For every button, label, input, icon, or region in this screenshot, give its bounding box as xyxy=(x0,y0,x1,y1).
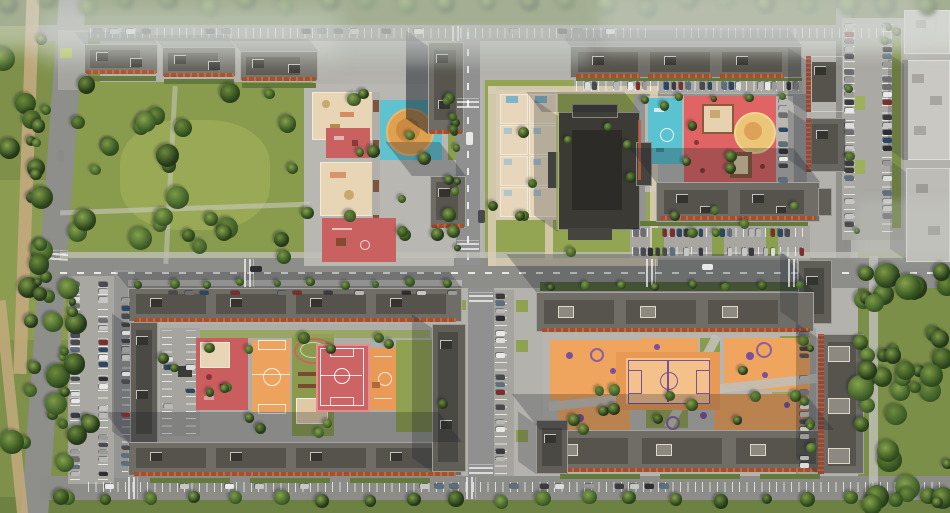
tree xyxy=(405,131,415,141)
e-equip-4 xyxy=(654,344,660,350)
tree xyxy=(909,382,920,393)
shadow-kindergarten-west xyxy=(534,99,558,232)
car xyxy=(883,85,892,90)
car xyxy=(800,390,809,394)
building-e-east-brick xyxy=(818,334,824,474)
car xyxy=(99,443,108,448)
tree xyxy=(845,85,853,93)
tree xyxy=(733,416,742,425)
car xyxy=(615,484,624,489)
car xyxy=(496,449,505,454)
tree xyxy=(451,187,460,196)
tree xyxy=(365,495,376,506)
tree xyxy=(796,281,803,288)
shadow-f-south xyxy=(105,412,462,442)
car xyxy=(883,161,892,166)
car xyxy=(883,54,892,59)
building-d-north-balc2 xyxy=(648,74,712,78)
car xyxy=(883,146,892,151)
car xyxy=(641,229,646,237)
tree xyxy=(344,210,355,221)
car xyxy=(122,314,130,318)
tree xyxy=(158,353,169,364)
building-d-north-balc1 xyxy=(576,74,640,78)
tree xyxy=(264,89,274,99)
car xyxy=(99,435,108,440)
sand1-equipment-1 xyxy=(322,100,330,108)
tree xyxy=(566,247,576,257)
sand2-equipment-2 xyxy=(344,190,354,200)
tree xyxy=(129,227,152,250)
lawn-light-patch xyxy=(120,120,270,230)
car xyxy=(592,82,597,90)
building-d-long-balc xyxy=(660,216,816,220)
car xyxy=(765,82,770,90)
tree xyxy=(623,140,632,149)
car xyxy=(122,298,130,302)
pergola-3 xyxy=(373,180,379,192)
hedge-f-south-2 xyxy=(250,478,330,483)
kg-canopy-1 xyxy=(504,128,512,134)
car xyxy=(664,82,669,90)
f-basket-ring xyxy=(263,368,281,386)
tree xyxy=(547,284,554,291)
building-e-bottom-box2 xyxy=(656,444,672,456)
building-f-south-sec1 xyxy=(136,448,206,468)
car xyxy=(679,82,684,90)
car xyxy=(845,130,854,135)
car xyxy=(278,291,287,296)
tree xyxy=(738,366,747,375)
building-f-east-core xyxy=(438,332,458,462)
car xyxy=(99,472,108,477)
tree xyxy=(688,121,697,130)
tree xyxy=(447,225,460,238)
red1-equipment xyxy=(352,140,358,146)
car xyxy=(686,82,691,90)
car xyxy=(845,214,854,219)
car xyxy=(663,248,668,256)
car xyxy=(800,248,805,256)
tree xyxy=(78,76,95,93)
car xyxy=(122,339,130,343)
car xyxy=(496,331,505,336)
tree xyxy=(790,202,798,210)
tree xyxy=(0,430,24,454)
tree xyxy=(877,440,899,462)
tree xyxy=(326,344,336,354)
car xyxy=(845,199,854,204)
tree xyxy=(453,144,460,151)
car xyxy=(496,420,505,425)
building-d-long-box1 xyxy=(676,194,688,203)
building-f-north-box2 xyxy=(230,298,242,307)
building-d-north-balc3 xyxy=(720,74,784,78)
car xyxy=(402,291,411,296)
car xyxy=(883,130,892,135)
car xyxy=(630,484,639,489)
car xyxy=(800,376,809,380)
tree xyxy=(90,165,101,176)
car xyxy=(225,484,234,489)
car xyxy=(787,82,792,90)
tree xyxy=(687,228,698,239)
building-right-2-unit3 xyxy=(914,126,926,135)
car xyxy=(779,128,788,133)
car xyxy=(677,229,682,237)
tree xyxy=(721,283,730,292)
car xyxy=(496,353,505,358)
car xyxy=(99,326,108,331)
car xyxy=(496,405,505,410)
car xyxy=(71,377,80,382)
splash-ring xyxy=(660,128,674,142)
tree xyxy=(653,414,663,424)
car xyxy=(845,161,854,166)
car xyxy=(122,323,130,327)
car xyxy=(883,92,892,97)
hedge-a1 xyxy=(86,76,156,81)
car xyxy=(749,229,754,237)
tree xyxy=(220,83,240,103)
car xyxy=(417,291,426,296)
tree xyxy=(34,238,47,251)
tree xyxy=(356,148,364,156)
car xyxy=(845,123,854,128)
tree xyxy=(34,278,42,286)
car xyxy=(883,123,892,128)
car xyxy=(800,412,809,416)
car xyxy=(300,484,309,489)
car xyxy=(699,229,704,237)
car xyxy=(99,289,108,294)
building-d-north-box1 xyxy=(592,56,604,65)
car xyxy=(729,82,734,90)
red-d-equip-1 xyxy=(694,140,699,145)
red2-equipment xyxy=(336,238,346,246)
car xyxy=(720,229,725,237)
car xyxy=(845,222,854,227)
red2-ring xyxy=(360,240,370,250)
car xyxy=(883,138,892,143)
kg-pool-1 xyxy=(506,96,518,103)
tree xyxy=(358,89,369,100)
crosswalk-ch-1 xyxy=(244,259,254,287)
tree xyxy=(314,428,324,438)
building-f-north-box3 xyxy=(310,298,322,307)
e-equip-6 xyxy=(762,372,768,378)
tree xyxy=(397,226,408,237)
tree xyxy=(454,178,461,185)
f-soccer-center-ring xyxy=(334,368,350,384)
car xyxy=(99,348,108,353)
car xyxy=(785,229,790,237)
e-basket-center-ring xyxy=(660,372,678,390)
car xyxy=(99,413,108,418)
car xyxy=(800,463,809,467)
tree xyxy=(30,169,41,180)
car xyxy=(800,456,809,460)
car xyxy=(845,92,854,97)
tree xyxy=(43,312,63,332)
building-f-west-box2 xyxy=(136,390,148,399)
tree xyxy=(229,491,242,504)
tree xyxy=(220,384,229,393)
car xyxy=(200,291,209,296)
tree xyxy=(56,454,74,472)
green-sq-1 xyxy=(516,300,528,312)
car xyxy=(663,229,668,237)
sandpit-d xyxy=(702,104,734,134)
car xyxy=(71,340,80,345)
car xyxy=(355,291,364,296)
crosswalk-cvn-1 xyxy=(457,98,479,108)
tree xyxy=(58,278,79,299)
tree xyxy=(53,489,69,505)
car xyxy=(736,82,741,90)
car xyxy=(708,82,713,90)
building-f-south-box4 xyxy=(390,452,402,461)
car xyxy=(496,309,505,314)
hedge-a2 xyxy=(164,79,234,84)
car-driving-5 xyxy=(478,210,485,223)
tree xyxy=(598,406,608,416)
car xyxy=(779,142,788,147)
car xyxy=(779,149,788,154)
tree xyxy=(865,294,883,312)
car xyxy=(555,484,564,489)
sand-playground-2 xyxy=(320,162,376,216)
hedge-a3 xyxy=(242,83,316,88)
tree xyxy=(862,495,882,513)
car xyxy=(643,82,648,90)
car xyxy=(771,229,776,237)
car xyxy=(71,392,80,397)
tree xyxy=(431,228,444,241)
tree xyxy=(895,274,921,300)
tree xyxy=(298,332,309,343)
tree xyxy=(582,490,597,505)
building-f-north-sec4 xyxy=(376,294,446,314)
e-equip-1 xyxy=(566,352,573,359)
tree xyxy=(28,361,40,373)
car xyxy=(122,413,130,417)
tree xyxy=(758,281,767,290)
kindergarten-south-annex xyxy=(568,228,612,240)
tree xyxy=(405,277,415,287)
car xyxy=(231,291,240,296)
car xyxy=(99,340,108,345)
building-d-north-sec2 xyxy=(650,52,710,72)
car xyxy=(99,355,108,360)
tree xyxy=(896,361,915,380)
tree xyxy=(29,254,49,274)
tree xyxy=(885,404,907,426)
building-f-south-box3 xyxy=(310,452,322,461)
tree xyxy=(665,391,675,401)
car-driving-1 xyxy=(466,132,473,145)
car xyxy=(656,248,661,256)
tree xyxy=(206,388,215,397)
tower-d-east-2-brick xyxy=(806,118,811,172)
car xyxy=(255,484,264,489)
car xyxy=(71,472,80,477)
building-f-north-sec3 xyxy=(296,294,366,314)
sand2-equipment-1 xyxy=(330,172,346,178)
car xyxy=(71,413,80,418)
tree xyxy=(64,353,85,374)
tree xyxy=(341,281,350,290)
tree xyxy=(604,123,612,131)
tree xyxy=(660,101,670,111)
e-ring-1 xyxy=(590,348,604,362)
f-oc2-line-1 xyxy=(374,356,392,357)
car xyxy=(764,248,769,256)
car xyxy=(800,434,809,438)
car xyxy=(883,191,892,196)
tree xyxy=(568,414,579,425)
building-e-top-sec3 xyxy=(708,300,778,324)
red1-mark xyxy=(334,136,344,140)
f-oc2-line-2 xyxy=(374,398,392,399)
tree xyxy=(725,151,736,162)
building-e-bottom-balc xyxy=(546,468,828,472)
tree xyxy=(845,152,854,161)
building-f-south-sec2 xyxy=(216,448,286,468)
e-ring-2 xyxy=(756,342,772,358)
car xyxy=(845,70,854,75)
car xyxy=(634,248,639,256)
car xyxy=(672,82,677,90)
car xyxy=(99,282,108,287)
crosswalk-cvs-1 xyxy=(469,292,493,302)
car xyxy=(670,248,675,256)
car xyxy=(628,82,633,90)
tower-mid-south-box xyxy=(544,434,556,443)
tree xyxy=(442,208,456,222)
tree xyxy=(60,387,70,397)
tree xyxy=(71,116,84,129)
tree xyxy=(101,138,116,153)
tree xyxy=(315,494,329,508)
building-f-north-sec1 xyxy=(136,294,206,314)
tree xyxy=(885,347,902,364)
car xyxy=(186,389,195,393)
car xyxy=(510,484,519,489)
car xyxy=(699,248,704,256)
car xyxy=(122,454,130,458)
tree xyxy=(518,127,529,138)
hedge-f-south-3 xyxy=(350,478,430,483)
red2-line xyxy=(332,228,352,230)
car-driving-3 xyxy=(702,264,713,270)
car xyxy=(728,229,733,237)
car xyxy=(71,399,80,404)
shadow-f-east xyxy=(412,314,432,472)
building-d-long-box3 xyxy=(700,206,710,213)
tree xyxy=(844,491,857,504)
sandpit-toy xyxy=(710,110,720,118)
e-equip-5 xyxy=(746,352,754,360)
car-driving-2 xyxy=(250,266,262,272)
car xyxy=(778,229,783,237)
car xyxy=(641,248,646,256)
tree xyxy=(578,424,589,435)
car xyxy=(883,100,892,105)
building-right-2 xyxy=(902,60,950,160)
car xyxy=(169,291,178,296)
car xyxy=(772,82,777,90)
green-sq-2 xyxy=(516,340,528,352)
tree xyxy=(301,207,314,220)
car xyxy=(883,77,892,82)
tree xyxy=(69,298,77,306)
car xyxy=(99,384,108,389)
hedge-e-south-2 xyxy=(660,474,740,479)
tree xyxy=(609,384,620,395)
car xyxy=(99,362,108,367)
round-playground-inner xyxy=(744,122,762,140)
tree xyxy=(154,208,173,227)
car xyxy=(883,115,892,120)
green-right-2 xyxy=(855,160,865,174)
crosswalk-bottom-1 xyxy=(466,477,476,499)
building-f-north-balc xyxy=(134,318,456,322)
tree xyxy=(448,491,463,506)
car xyxy=(728,248,733,256)
crosswalk-cvs-2 xyxy=(469,464,493,474)
car xyxy=(99,319,108,324)
tree xyxy=(608,403,620,415)
tree xyxy=(686,399,698,411)
building-e-top-balc xyxy=(542,328,810,332)
tree xyxy=(279,115,297,133)
car xyxy=(845,100,854,105)
tree xyxy=(67,425,87,445)
building-e-bottom-box3 xyxy=(750,444,766,456)
tree xyxy=(274,490,290,506)
car xyxy=(742,248,747,256)
building-right-3-unit1 xyxy=(916,184,928,193)
car xyxy=(164,404,173,408)
building-right-2-unit1 xyxy=(912,74,924,83)
car xyxy=(122,355,130,359)
car xyxy=(540,484,549,489)
car xyxy=(450,484,459,489)
car xyxy=(779,178,788,183)
tree xyxy=(438,399,448,409)
crosswalk-bottom-2 xyxy=(128,477,138,499)
f-oc2-equip xyxy=(372,382,380,388)
car xyxy=(99,297,108,302)
tree xyxy=(32,139,40,147)
car xyxy=(122,372,130,376)
car xyxy=(722,82,727,90)
car xyxy=(700,82,705,90)
car xyxy=(71,348,80,353)
pergola-1 xyxy=(373,100,379,112)
hedge-e-south-3 xyxy=(760,474,820,479)
tree xyxy=(535,491,550,506)
building-f-south-box1 xyxy=(150,452,162,461)
tree xyxy=(528,179,537,188)
car xyxy=(496,427,505,432)
car xyxy=(779,157,788,162)
haze-topleft xyxy=(40,10,340,65)
car xyxy=(758,82,763,90)
building-f-south-box2 xyxy=(230,452,242,461)
green-right-1 xyxy=(855,96,865,110)
